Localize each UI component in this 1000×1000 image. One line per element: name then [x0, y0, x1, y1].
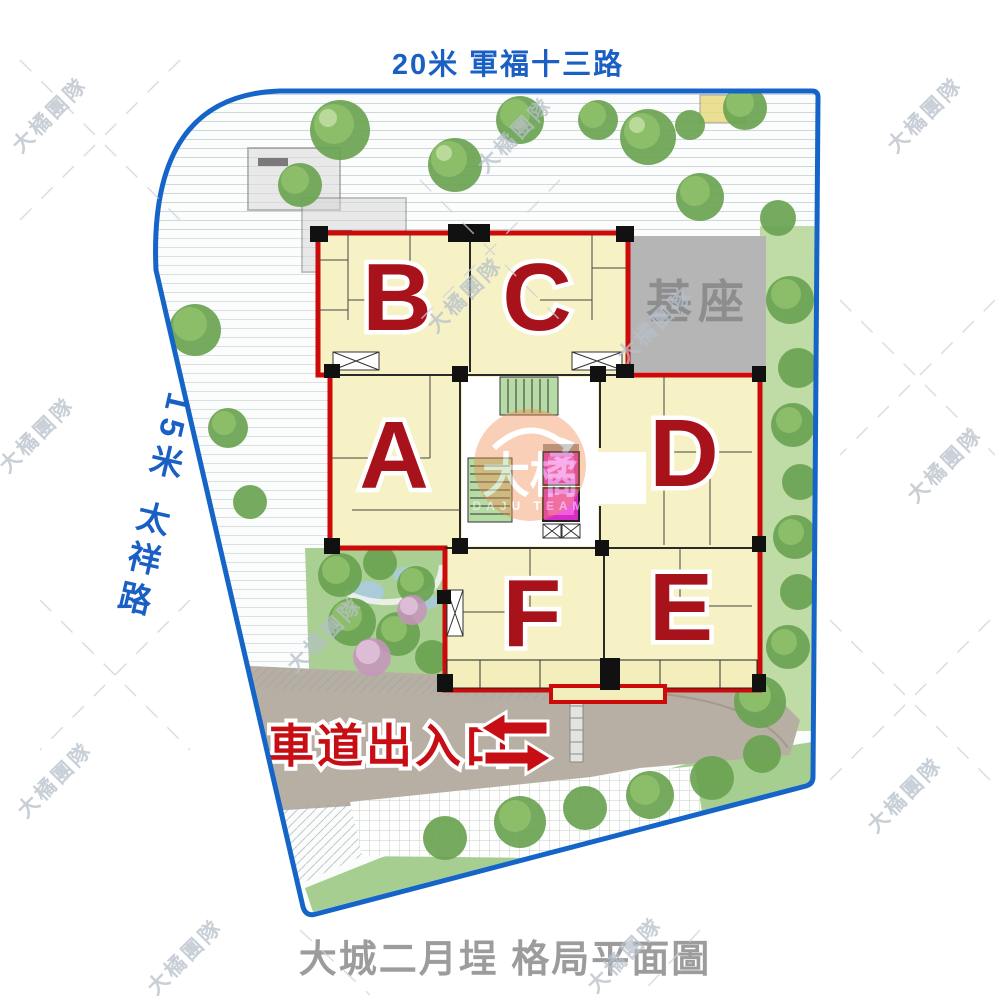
tree	[233, 485, 267, 519]
tree	[363, 546, 397, 580]
watermark-text: 大橘團隊	[903, 423, 988, 508]
tree	[675, 110, 705, 140]
tree	[620, 109, 676, 165]
watermark-text: 大橘團隊	[143, 915, 228, 1000]
tree	[766, 276, 814, 324]
tree	[676, 173, 724, 221]
tree	[771, 403, 815, 447]
unit-label-e: E	[649, 554, 713, 661]
floor-plan-page: 車道出入口 基座 B C A D F E 20米 軍福十三路 大城二月埕 格局平…	[0, 0, 1000, 1000]
unit-label-f: F	[503, 560, 562, 667]
tree	[778, 348, 818, 388]
tree	[494, 796, 546, 848]
unit-label-a: A	[359, 402, 428, 509]
tree	[278, 163, 322, 207]
tree	[743, 735, 781, 773]
tree	[563, 786, 607, 830]
logo-cn-text: 大橘	[482, 450, 578, 503]
tree	[780, 574, 816, 610]
watermark-text: 大橘團隊	[883, 73, 968, 158]
tree	[353, 638, 391, 676]
watermark-text: 大橘團隊	[13, 738, 98, 823]
corridor	[598, 452, 646, 504]
tree	[423, 816, 467, 860]
tree	[760, 200, 796, 236]
unit-label-b: B	[362, 244, 431, 351]
unit-label-d: D	[649, 400, 718, 507]
tree	[428, 138, 482, 192]
logo-en-text: DAJU TEAM	[472, 499, 587, 513]
tree	[318, 553, 362, 597]
road-label-top: 20米 軍福十三路	[392, 48, 624, 81]
tree	[208, 408, 248, 448]
tree	[766, 625, 810, 669]
shaft-vent	[543, 524, 580, 538]
tree	[310, 100, 370, 160]
tree	[578, 100, 618, 140]
tree	[690, 756, 734, 800]
tree	[397, 595, 427, 625]
tree	[773, 515, 817, 559]
watermark-text: 大橘團隊	[0, 393, 79, 478]
watermark-text: 大橘團隊	[863, 753, 948, 838]
driveway-callout: 車道出入口	[268, 712, 552, 774]
tree	[169, 304, 221, 356]
driveway-label: 車道出入口	[268, 720, 513, 772]
entry-walk	[570, 694, 583, 762]
tree	[626, 771, 674, 819]
watermark-text: 大橘團隊	[8, 73, 93, 158]
